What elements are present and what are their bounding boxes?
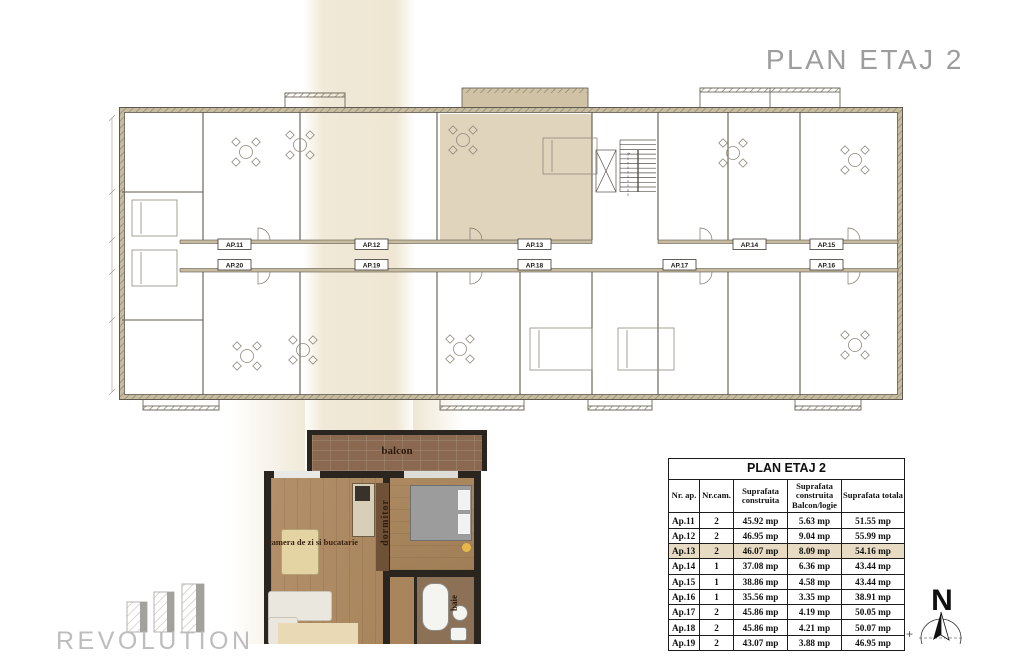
svg-text:AP.19: AP.19 — [363, 263, 381, 270]
table-cell: 2 — [700, 605, 734, 620]
svg-text:AP.13: AP.13 — [526, 242, 544, 249]
plan-unit-label: AP.15 — [810, 239, 843, 250]
plan-unit-label: AP.14 — [733, 239, 766, 250]
page: { "page": { "title": "PLAN ETAJ 2" }, "c… — [0, 0, 1024, 644]
table-cell: 2 — [700, 543, 734, 558]
render-balcony: balcon — [307, 430, 487, 471]
svg-text:AP.16: AP.16 — [818, 263, 836, 270]
table-cell: 4.58 mp — [788, 574, 842, 589]
render-lamp — [462, 543, 471, 552]
table-cell: 45.92 mp — [734, 513, 788, 528]
table-cell: 6.36 mp — [788, 559, 842, 574]
table-row: Ap.17245.86 mp4.19 mp50.05 mp — [669, 605, 905, 620]
table-cell: 46.95 mp — [734, 528, 788, 543]
table-col-header: Nr. ap. — [669, 480, 700, 513]
table-row: Ap.11245.92 mp5.63 mp51.55 mp — [669, 513, 905, 528]
svg-text:AP.18: AP.18 — [526, 263, 544, 270]
compass-icon: N — [905, 578, 980, 644]
table-row: Ap.12246.95 mp9.04 mp55.99 mp — [669, 528, 905, 543]
svg-text:AP.15: AP.15 — [818, 242, 836, 249]
table-header-row: Nr. ap.Nr.cam.Suprafata construitaSupraf… — [669, 480, 905, 513]
svg-text:AP.20: AP.20 — [226, 263, 244, 270]
render-stove — [355, 486, 370, 501]
table-cell: 38.91 mp — [842, 589, 905, 604]
svg-text:AP.12: AP.12 — [363, 242, 381, 249]
plan-unit-label: AP.13 — [518, 239, 551, 250]
table-cell: 45.86 mp — [734, 620, 788, 635]
table-cell: 2 — [700, 513, 734, 528]
table-row: Ap.14137.08 mp6.36 mp43.44 mp — [669, 559, 905, 574]
table-cell: 51.55 mp — [842, 513, 905, 528]
table-title: PLAN ETAJ 2 — [669, 459, 905, 480]
table-cell: 5.63 mp — [788, 513, 842, 528]
table-cell: 37.08 mp — [734, 559, 788, 574]
table-cell: 2 — [700, 528, 734, 543]
table-cell: 54.16 mp — [842, 543, 905, 558]
render-bedroom-window — [404, 471, 458, 478]
table-cell: 43.44 mp — [842, 559, 905, 574]
render-hall — [390, 577, 414, 644]
logo: REVOLUTION — [56, 583, 316, 644]
table-cell: 2 — [700, 635, 734, 650]
table-cell: 1 — [700, 559, 734, 574]
table-row: Ap.13246.07 mp8.09 mp54.16 mp — [669, 543, 905, 558]
table-cell: 4.21 mp — [788, 620, 842, 635]
table-row: Ap.19243.07 mp3.88 mp46.95 mp — [669, 635, 905, 650]
svg-text:AP.11: AP.11 — [226, 242, 243, 249]
plan-unit-label: AP.19 — [355, 260, 388, 271]
table-cell: 43.44 mp — [842, 574, 905, 589]
table-row: Ap.16135.56 mp3.35 mp38.91 mp — [669, 589, 905, 604]
area-table: PLAN ETAJ 2 Nr. ap.Nr.cam.Suprafata cons… — [668, 458, 905, 651]
table-cell: Ap.13 — [669, 543, 700, 558]
table-cell: 50.05 mp — [842, 605, 905, 620]
table-cell: Ap.16 — [669, 589, 700, 604]
table-col-header: Suprafata totala — [842, 480, 905, 513]
table-cell: 9.04 mp — [788, 528, 842, 543]
render-bathtub — [422, 583, 449, 631]
logo-text: REVOLUTION — [56, 627, 254, 656]
plan-unit-label: AP.11 — [218, 239, 251, 250]
table-cell: Ap.15 — [669, 574, 700, 589]
render-kitchen-counter — [352, 483, 375, 537]
table-cell: 35.56 mp — [734, 589, 788, 604]
plan-unit-label: AP.20 — [218, 260, 251, 271]
table-col-header: Suprafata construita Balcon/logie — [788, 480, 842, 513]
render-bedroom-label: dormitor — [380, 499, 391, 546]
table-cell: 2 — [700, 620, 734, 635]
table-col-header: Suprafata construita — [734, 480, 788, 513]
crop-mark: + — [906, 627, 913, 641]
compass-north-label: N — [931, 584, 953, 617]
table-cell: Ap.18 — [669, 620, 700, 635]
table-cell: 1 — [700, 574, 734, 589]
plan-dimension-line — [109, 115, 115, 395]
svg-text:AP.17: AP.17 — [671, 263, 689, 270]
svg-text:AP.14: AP.14 — [741, 242, 759, 249]
table-cell: Ap.19 — [669, 635, 700, 650]
table-cell: Ap.12 — [669, 528, 700, 543]
table-row: Ap.18245.86 mp4.21 mp50.07 mp — [669, 620, 905, 635]
render-toilet — [450, 627, 467, 641]
table-cell: 45.86 mp — [734, 605, 788, 620]
table-cell: 3.88 mp — [788, 635, 842, 650]
table-cell: 46.95 mp — [842, 635, 905, 650]
plan-unit-label: AP.17 — [663, 260, 696, 271]
plan-unit-label: AP.12 — [355, 239, 388, 250]
table-cell: 1 — [700, 589, 734, 604]
table-cell: 50.07 mp — [842, 620, 905, 635]
table-cell: 38.86 mp — [734, 574, 788, 589]
table-cell: 3.35 mp — [788, 589, 842, 604]
table-cell: Ap.17 — [669, 605, 700, 620]
table-col-header: Nr.cam. — [700, 480, 734, 513]
table-cell: 55.99 mp — [842, 528, 905, 543]
table-cell: 4.19 mp — [788, 605, 842, 620]
plan-stairwell — [596, 140, 656, 196]
render-bed — [410, 485, 472, 541]
plan-unit-label: AP.18 — [518, 260, 551, 271]
table-cell: 8.09 mp — [788, 543, 842, 558]
render-balcony-door — [274, 471, 320, 478]
table-cell: 43.07 mp — [734, 635, 788, 650]
render-bath-label: baie — [449, 595, 459, 611]
table-cell: Ap.14 — [669, 559, 700, 574]
plan-unit-label: AP.16 — [810, 260, 843, 271]
render-dining-table — [281, 529, 319, 575]
table-cell: 46.07 mp — [734, 543, 788, 558]
render-balcony-label: balcon — [381, 445, 412, 457]
table-row: Ap.15138.86 mp4.58 mp43.44 mp — [669, 574, 905, 589]
table-cell: Ap.11 — [669, 513, 700, 528]
logo-buildings-icon — [126, 583, 216, 633]
render-living-label: camera de zi si bucatarie — [264, 537, 362, 548]
render-pillows — [458, 490, 470, 510]
